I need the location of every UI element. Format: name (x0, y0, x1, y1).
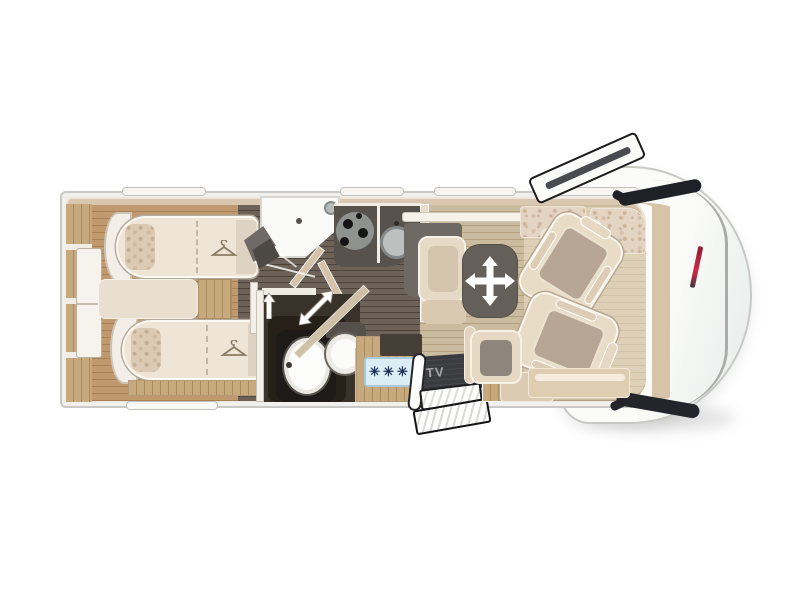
motorhome-floorplan: ✳✳✳ TV (0, 0, 800, 600)
sink-faucet (394, 221, 399, 226)
hanger-icon (220, 340, 248, 358)
four-way-arrow-icon (463, 254, 517, 308)
between-beds-platform (98, 279, 198, 319)
bed-bench (128, 380, 268, 396)
basin-faucet (286, 362, 292, 368)
entrance-seat-cushion (480, 340, 512, 376)
dinette-base (422, 300, 466, 324)
dinette-seat-cushion (428, 246, 458, 292)
hob-burner (358, 228, 368, 238)
twin-bed-bottom (122, 320, 270, 380)
freezer-stars-label: ✳✳✳ (369, 364, 411, 380)
window-strip (340, 187, 404, 196)
fridge-freezer-panel: ✳✳✳ (364, 357, 416, 387)
lounge-sideboard (528, 368, 630, 398)
kitchen-divider (377, 205, 380, 263)
window-strip (126, 401, 218, 410)
window-strip (122, 187, 206, 196)
sideboard-trim (535, 374, 625, 381)
twin-bed-top (116, 216, 258, 278)
hob-burner (356, 213, 362, 219)
sideboard-shelf (402, 212, 522, 222)
entrance-seat (470, 330, 522, 384)
pillow (124, 223, 156, 271)
hob-burner (340, 237, 349, 246)
hanger-icon (210, 240, 238, 258)
mattress-divider (206, 325, 208, 375)
window-strip (434, 187, 516, 196)
hob-burner (343, 219, 353, 229)
tv-label: TV (426, 364, 446, 380)
mattress-divider (196, 221, 198, 273)
door-swing-arrow-icon (262, 293, 276, 319)
shower-drain (296, 218, 302, 224)
dinette-seat (418, 236, 466, 302)
bedside-step (198, 279, 232, 319)
pillow (130, 327, 162, 373)
